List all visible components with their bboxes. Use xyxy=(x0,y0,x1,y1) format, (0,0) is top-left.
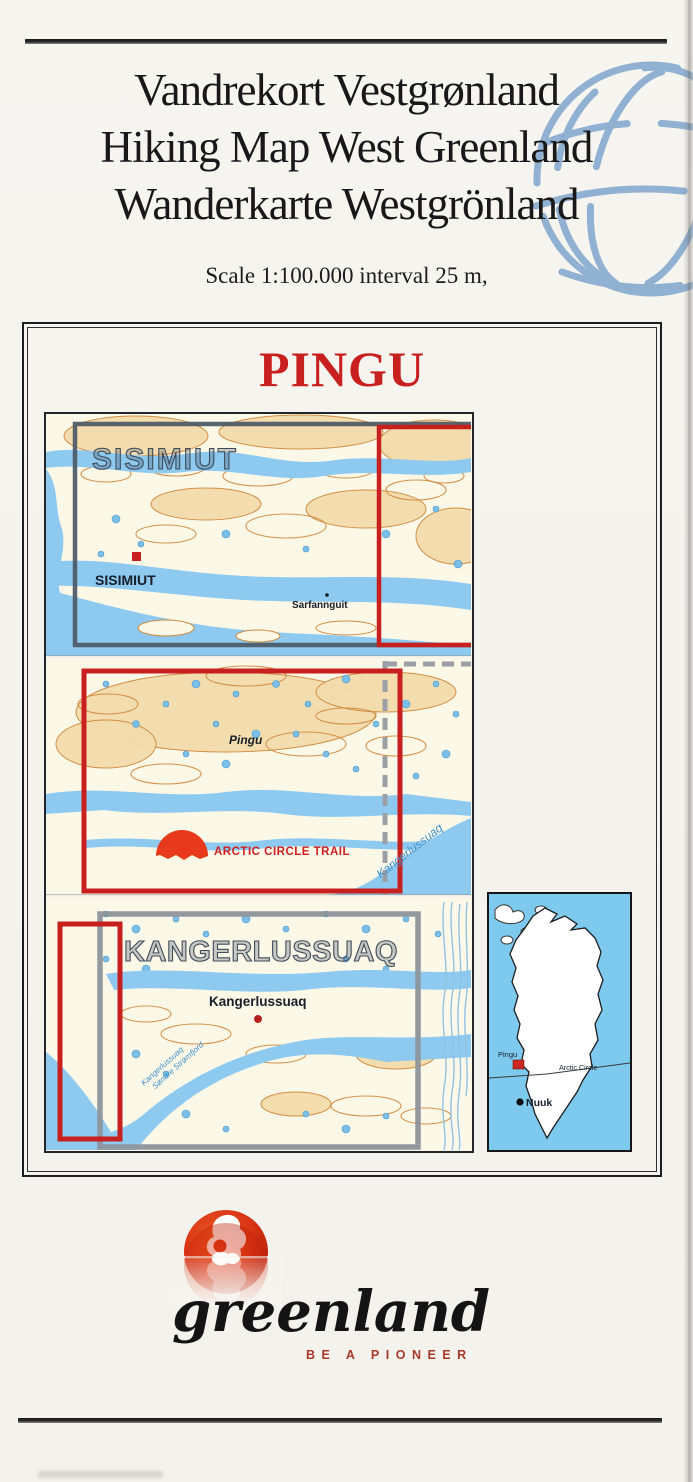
brand-tagline: BE A PIONEER xyxy=(306,1348,473,1362)
inset-pingu-label: Pingu xyxy=(498,1050,517,1059)
topo-map-panel: SISIMIUT SISIMIUT Sarfannguit xyxy=(44,412,474,1153)
sheet-title: PINGU xyxy=(22,340,662,398)
nuuk-marker xyxy=(516,1098,523,1105)
title-line-german: Wanderkarte Westgrönland xyxy=(0,176,693,233)
scale-note: Scale 1:100.000 interval 25 m, xyxy=(0,263,693,289)
arctic-circle-trail-label: ARCTIC CIRCLE TRAIL xyxy=(214,846,350,858)
topo-map-graphic: SISIMIUT SISIMIUT Sarfannguit xyxy=(46,414,471,1150)
fold-seam xyxy=(46,655,471,656)
kangerlussuaq-town-marker xyxy=(254,1015,262,1023)
title-line-english: Hiking Map West Greenland xyxy=(0,119,693,176)
sarfannguit-town-marker xyxy=(325,593,329,597)
greenland-inset: Pingu Arctic Circle Nuuk xyxy=(487,892,632,1152)
fold-seam-gap xyxy=(46,895,471,898)
brand-wordmark: greenland xyxy=(172,1279,488,1345)
inset-arctic-circle-label: Arctic Circle xyxy=(559,1063,597,1072)
fold-seam-gap xyxy=(46,656,471,659)
inset-nuuk-label: Nuuk xyxy=(526,1097,552,1109)
pingu-extent-marker xyxy=(513,1060,524,1069)
bottom-rule xyxy=(18,1418,662,1423)
title-line-danish: Vandrekort Vestgrønland xyxy=(0,62,693,119)
sisimiut-sheet-label: SISIMIUT xyxy=(92,443,238,476)
sisimiut-town-label: SISIMIUT xyxy=(95,572,156,588)
kangerlussuaq-sheet-label: KANGERLUSSUAQ xyxy=(124,936,398,968)
map-strip-pingu: Pingu ARCTIC CIRCLE TRAIL Kangerlussuaq xyxy=(46,659,471,895)
top-rule xyxy=(25,39,667,44)
map-cover-page: { "header": { "title_line1": "Vandrekort… xyxy=(0,0,693,1482)
page-fold-edge xyxy=(683,0,693,1482)
greenland-inset-graphic: Pingu Arctic Circle Nuuk xyxy=(489,894,630,1150)
masthead: Vandrekort Vestgrønland Hiking Map West … xyxy=(0,62,693,233)
kangerlussuaq-town-label: Kangerlussuaq xyxy=(209,994,307,1009)
sarfannguit-town-label: Sarfannguit xyxy=(292,600,348,611)
pingu-place-label: Pingu xyxy=(229,733,263,747)
sisimiut-town-marker xyxy=(132,552,141,561)
map-strip-kangerlussuaq: KANGERLUSSUAQ Kangerlussuaq Kangerlussua… xyxy=(46,898,471,1150)
print-smudge xyxy=(38,1471,163,1478)
fold-seam xyxy=(46,894,471,895)
